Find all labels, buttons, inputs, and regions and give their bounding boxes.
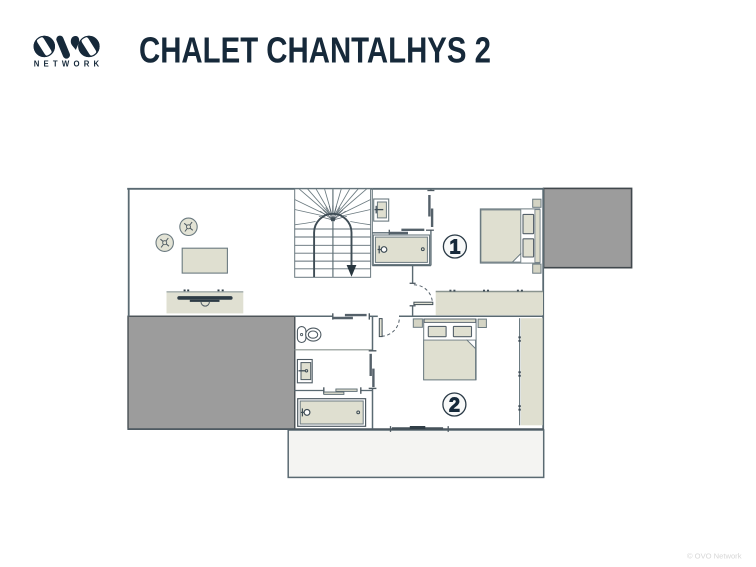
svg-text:NETWORK: NETWORK bbox=[34, 60, 104, 69]
svg-text:2: 2 bbox=[449, 395, 460, 417]
svg-text:© OVO Network: © OVO Network bbox=[687, 552, 742, 561]
svg-text:1: 1 bbox=[449, 237, 460, 259]
svg-text:CHALET CHANTALHYS 2: CHALET CHANTALHYS 2 bbox=[139, 30, 491, 71]
